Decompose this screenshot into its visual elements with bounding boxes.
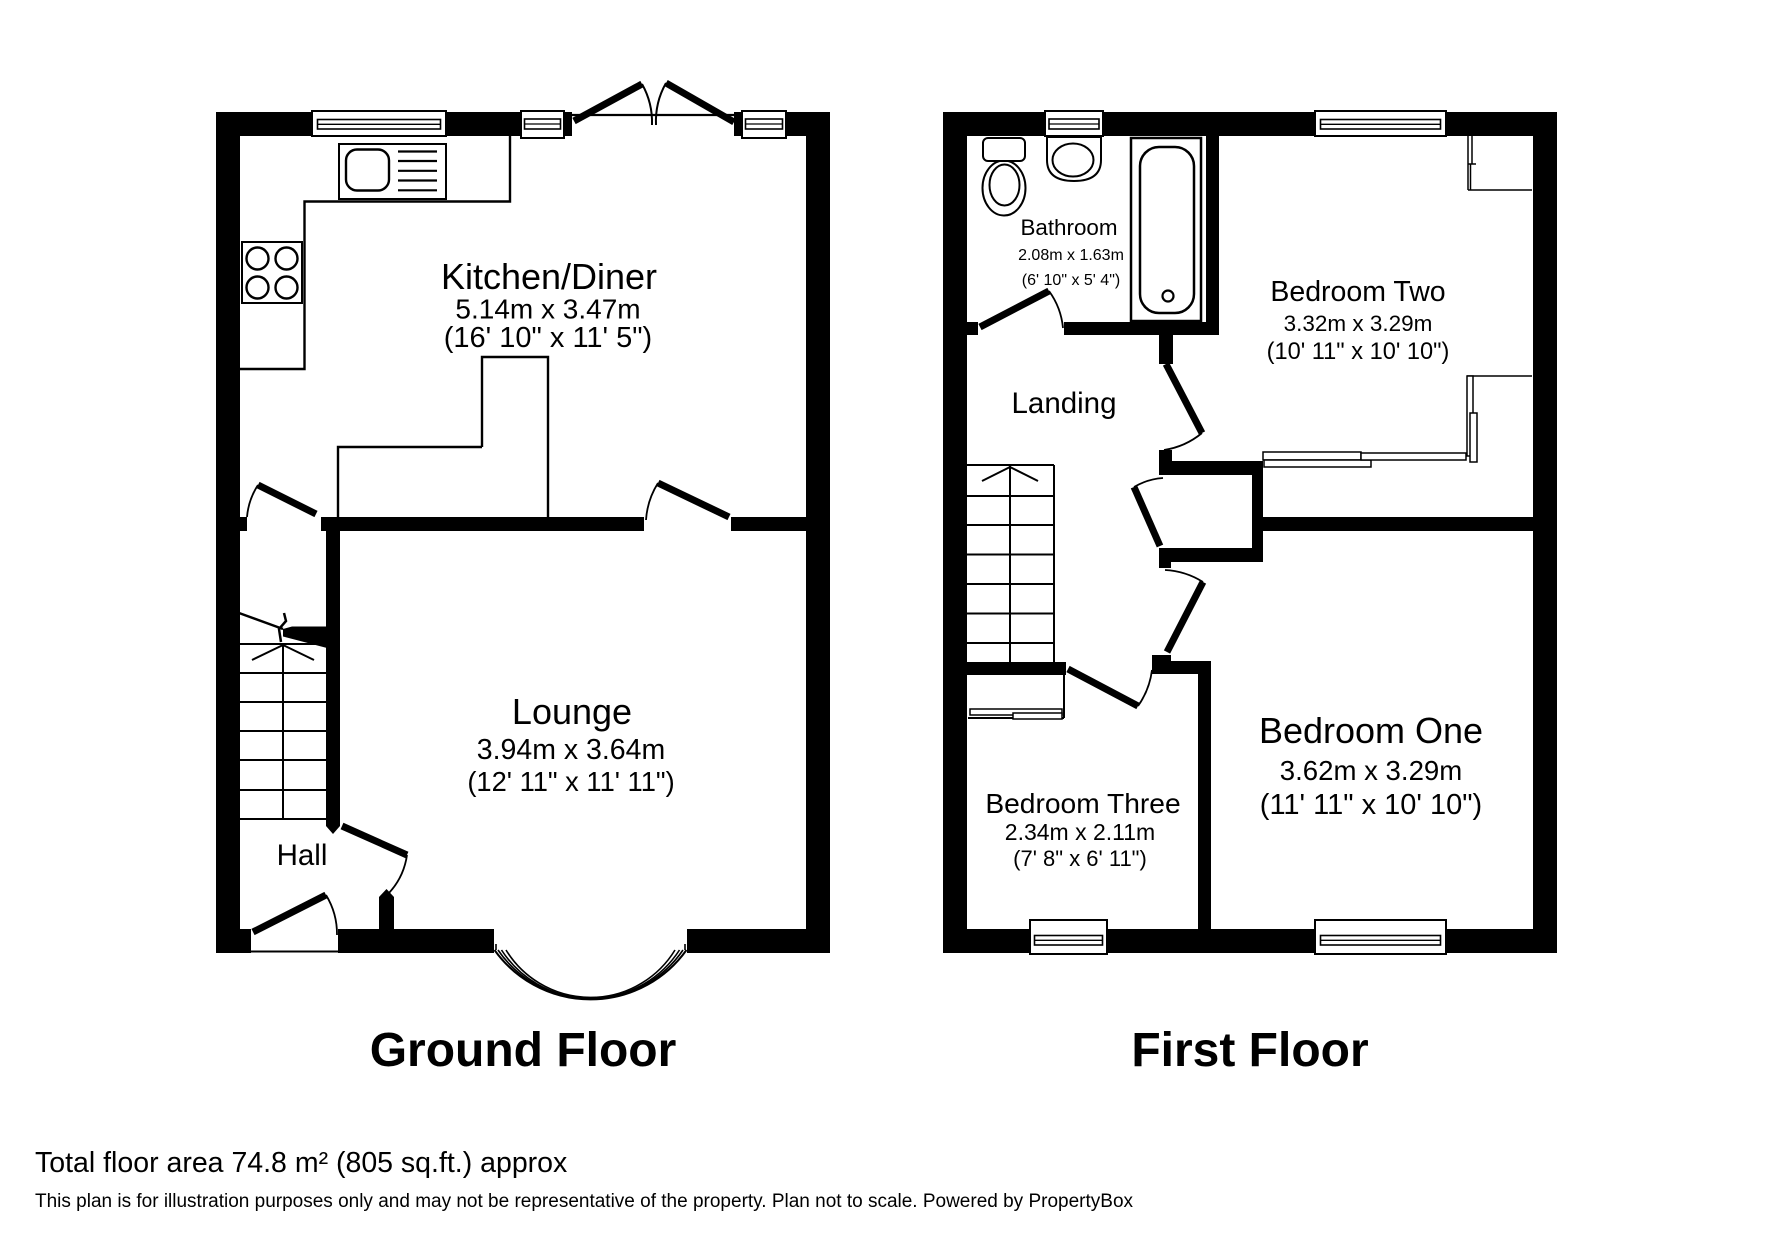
svg-text:Kitchen/Diner: Kitchen/Diner — [441, 256, 657, 297]
svg-text:3.62m x 3.29m: 3.62m x 3.29m — [1280, 755, 1463, 786]
svg-text:2.08m x 1.63m: 2.08m x 1.63m — [1018, 247, 1124, 264]
svg-text:Ground Floor: Ground Floor — [370, 1024, 677, 1077]
svg-text:Bedroom Three: Bedroom Three — [985, 787, 1180, 819]
svg-text:(16' 10" x 11' 5"): (16' 10" x 11' 5") — [444, 322, 652, 354]
svg-text:First Floor: First Floor — [1131, 1024, 1368, 1077]
svg-text:(10' 11" x 10' 10"): (10' 11" x 10' 10") — [1267, 339, 1450, 365]
svg-text:(11' 11" x 10' 10"): (11' 11" x 10' 10") — [1260, 789, 1482, 821]
svg-text:Landing: Landing — [1012, 387, 1117, 420]
svg-text:Bedroom Two: Bedroom Two — [1270, 276, 1445, 308]
svg-text:This plan is for illustration: This plan is for illustration purposes o… — [35, 1191, 1134, 1212]
svg-text:2.34m x 2.11m: 2.34m x 2.11m — [1005, 819, 1155, 845]
svg-text:Bedroom One: Bedroom One — [1259, 710, 1483, 751]
svg-text:Total floor area 74.8 m² (805: Total floor area 74.8 m² (805 sq.ft.) ap… — [35, 1147, 567, 1179]
svg-text:(12' 11" x 11' 11"): (12' 11" x 11' 11") — [467, 766, 674, 797]
svg-text:5.14m x 3.47m: 5.14m x 3.47m — [455, 294, 640, 325]
svg-text:3.94m x 3.64m: 3.94m x 3.64m — [477, 734, 666, 766]
svg-text:3.32m x 3.29m: 3.32m x 3.29m — [1284, 311, 1433, 336]
svg-text:Lounge: Lounge — [512, 691, 632, 732]
svg-text:(7' 8" x 6' 11"): (7' 8" x 6' 11") — [1013, 846, 1147, 871]
svg-text:Hall: Hall — [277, 839, 328, 872]
svg-text:Bathroom: Bathroom — [1020, 215, 1117, 240]
svg-text:(6' 10" x 5' 4"): (6' 10" x 5' 4") — [1022, 272, 1120, 289]
